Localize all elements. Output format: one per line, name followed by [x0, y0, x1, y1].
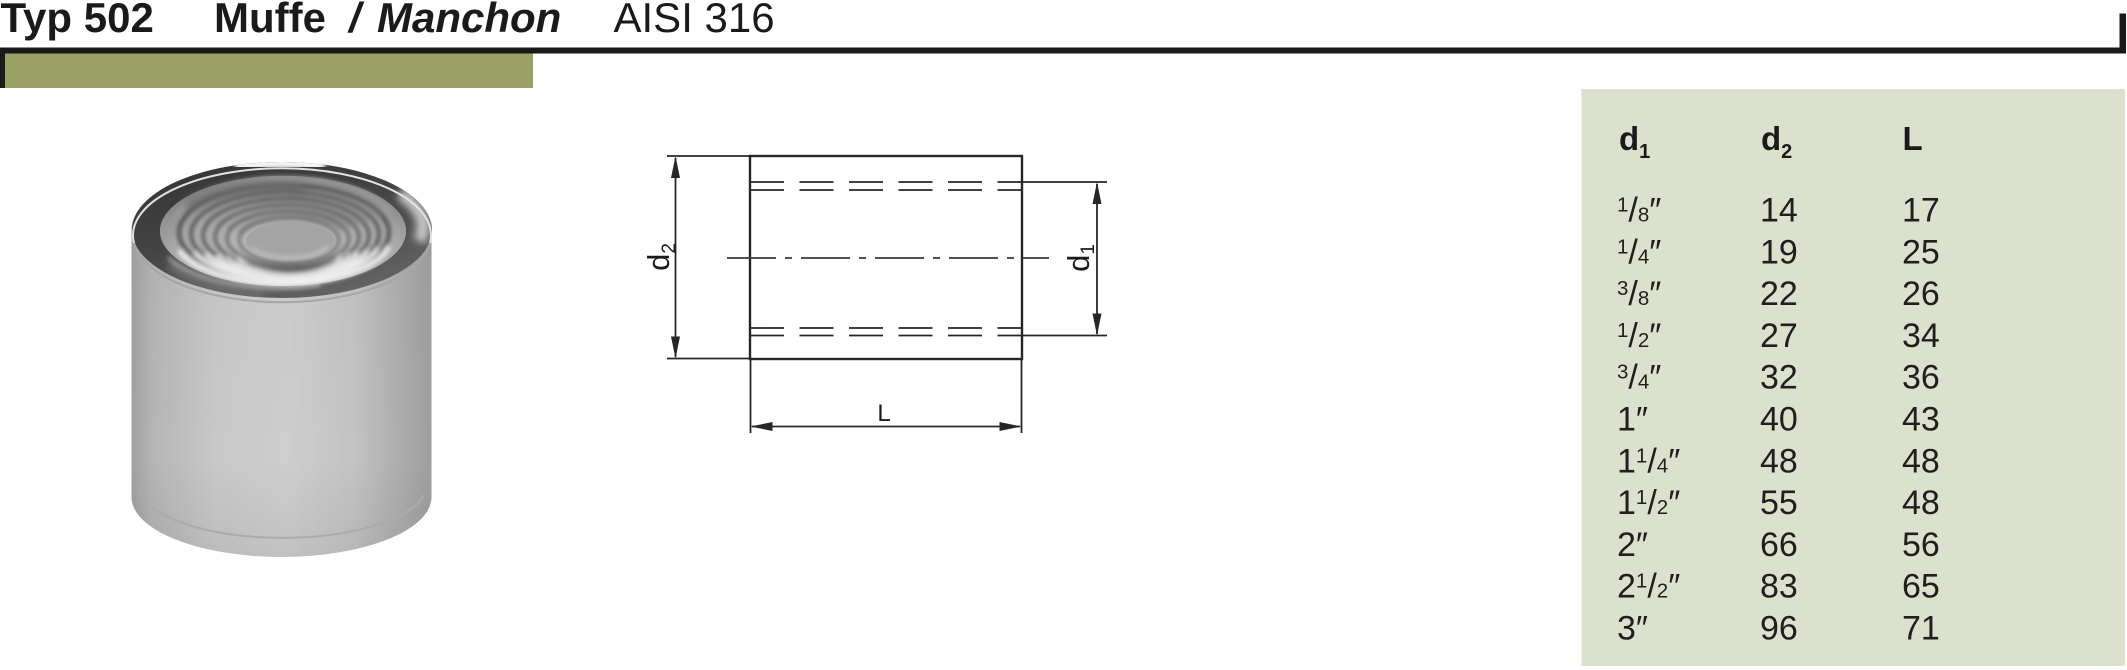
svg-text:14: 14 — [1760, 192, 1798, 230]
svg-text:48: 48 — [1760, 442, 1798, 480]
svg-text:17: 17 — [1902, 192, 1940, 230]
svg-text:27: 27 — [1760, 317, 1798, 355]
svg-text:19: 19 — [1760, 233, 1798, 271]
svg-text:25: 25 — [1902, 233, 1940, 271]
svg-text:32: 32 — [1760, 359, 1798, 397]
svg-text:48: 48 — [1902, 442, 1940, 480]
svg-text:Muffe: Muffe — [214, 0, 326, 41]
svg-text:40: 40 — [1760, 401, 1798, 439]
svg-text:83: 83 — [1760, 568, 1798, 606]
svg-text:L: L — [877, 400, 890, 427]
svg-text:22: 22 — [1760, 275, 1798, 313]
svg-text:11/4″: 11/4″ — [1617, 442, 1680, 480]
svg-text:71: 71 — [1902, 610, 1940, 648]
svg-text:56: 56 — [1902, 526, 1940, 564]
svg-text:34: 34 — [1902, 317, 1940, 355]
svg-text:2″: 2″ — [1617, 526, 1648, 564]
svg-text:36: 36 — [1902, 359, 1940, 397]
svg-text:3″: 3″ — [1617, 610, 1648, 648]
svg-text:48: 48 — [1902, 484, 1940, 522]
svg-text:L: L — [1903, 120, 1923, 157]
svg-text:AISI 316: AISI 316 — [614, 0, 775, 41]
svg-text:Typ 502: Typ 502 — [1, 0, 154, 41]
svg-text:Manchon: Manchon — [377, 0, 561, 41]
svg-text:43: 43 — [1902, 401, 1940, 439]
svg-text:65: 65 — [1902, 568, 1940, 606]
svg-text:66: 66 — [1760, 526, 1798, 564]
svg-text:1″: 1″ — [1617, 401, 1648, 439]
svg-text:96: 96 — [1760, 610, 1798, 648]
svg-text:11/2″: 11/2″ — [1617, 484, 1680, 522]
svg-text:55: 55 — [1760, 484, 1798, 522]
svg-text:21/2″: 21/2″ — [1617, 568, 1680, 606]
svg-text:26: 26 — [1902, 275, 1940, 313]
